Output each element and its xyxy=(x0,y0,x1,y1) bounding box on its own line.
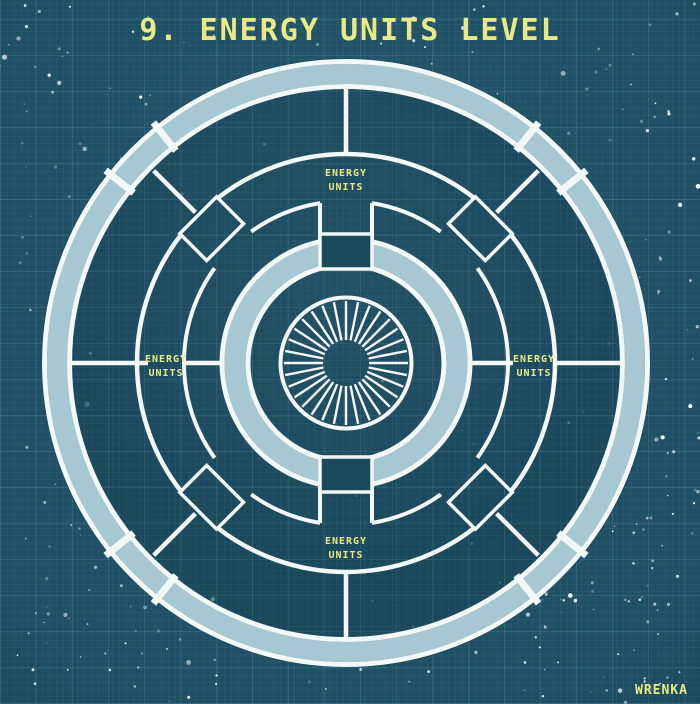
label-line: UNITS xyxy=(318,181,374,195)
label-line: UNITS xyxy=(138,367,194,381)
ring-notch-bottom xyxy=(320,457,372,492)
energy-units-label-right: ENERGY UNITS xyxy=(506,353,562,381)
energy-units-label-left: ENERGY UNITS xyxy=(138,353,194,381)
ring-notch-top xyxy=(320,234,372,269)
station-deck-diagram xyxy=(0,0,700,704)
label-line: ENERGY xyxy=(506,353,562,367)
label-line: ENERGY xyxy=(138,353,194,367)
page-title: 9. ENERGY UNITS LEVEL xyxy=(0,13,700,48)
label-line: ENERGY xyxy=(318,535,374,549)
label-line: UNITS xyxy=(506,367,562,381)
energy-units-label-bottom: ENERGY UNITS xyxy=(318,535,374,563)
artist-signature: WRENKA xyxy=(635,683,688,698)
energy-units-label-top: ENERGY UNITS xyxy=(318,167,374,195)
label-line: UNITS xyxy=(318,549,374,563)
label-line: ENERGY xyxy=(318,167,374,181)
